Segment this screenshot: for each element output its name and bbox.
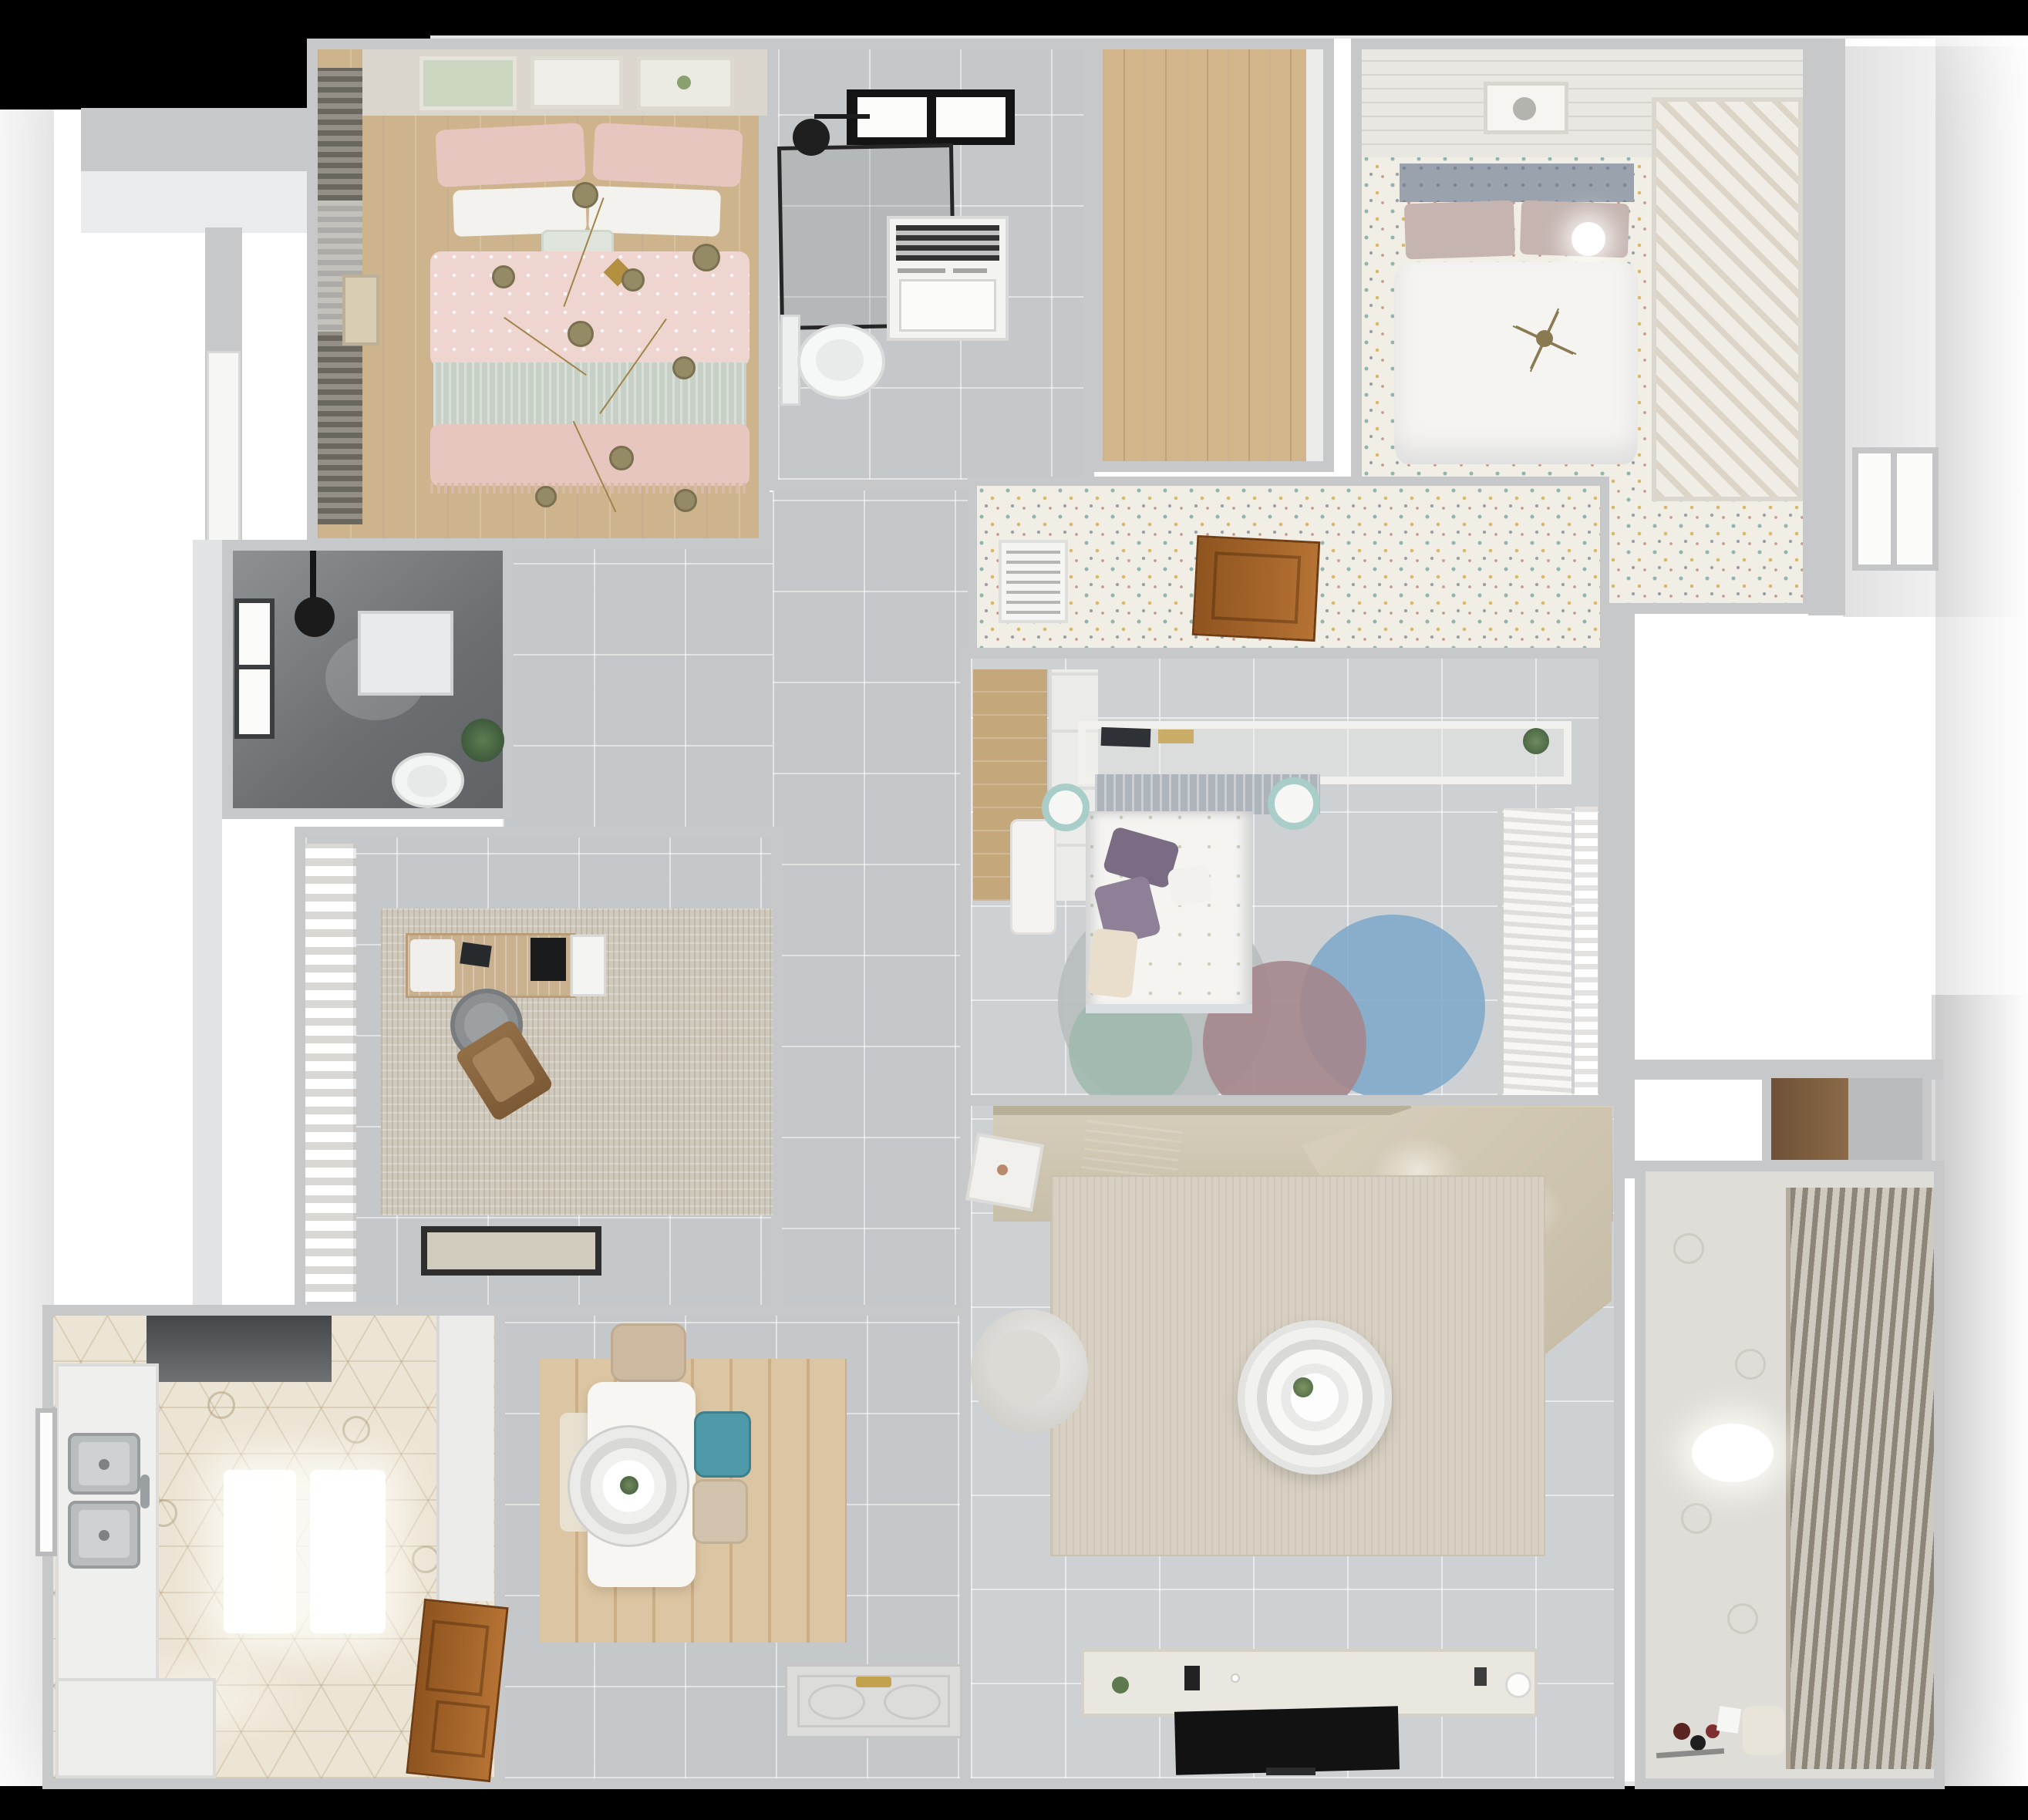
hallway-floor — [773, 478, 970, 1320]
keyboard — [460, 942, 492, 967]
armchair-seat — [988, 1330, 1060, 1404]
right-wall-window-bar — [1891, 453, 1897, 565]
chandelier-hub — [1536, 330, 1553, 347]
chair-teal — [694, 1411, 751, 1478]
sheer-curtain — [1575, 807, 1598, 1095]
black-bottom-bar — [0, 1786, 2028, 1820]
tv-stand — [1266, 1768, 1316, 1775]
shower-stem — [310, 551, 316, 598]
paper — [1716, 1706, 1741, 1734]
shower-head — [295, 597, 335, 637]
toy-stick — [1656, 1748, 1724, 1758]
ceiling-light-1 — [224, 1470, 296, 1633]
window-bar — [234, 665, 275, 669]
hex-motif-2 — [342, 1416, 370, 1444]
bed-fringe — [430, 483, 750, 494]
entry-door-gold-handles — [856, 1677, 891, 1687]
exterior-shade-right-bottom — [1932, 995, 2028, 1786]
art-frame-leaf — [419, 56, 517, 110]
pillow-cream — [1087, 928, 1139, 999]
hanging-clothes — [1504, 808, 1572, 1095]
chair-beige-right — [692, 1479, 748, 1544]
toy-2 — [1690, 1735, 1706, 1751]
shower-tray — [358, 611, 453, 696]
bed-pillow-pink-left — [435, 123, 586, 187]
sofa-back-line — [993, 1106, 1440, 1115]
plant — [461, 719, 504, 762]
room-dining — [492, 1305, 971, 1789]
sink-top-drain — [99, 1459, 109, 1470]
chandelier-bulb-7 — [609, 446, 634, 470]
room-bathroom — [767, 39, 1094, 490]
pendant-plant — [620, 1476, 638, 1495]
floor-plan-canvas — [0, 0, 2028, 1820]
stool — [1743, 1706, 1784, 1755]
wardrobe-wall-face — [1306, 49, 1323, 461]
kitchen-door-panel-1 — [425, 1619, 489, 1696]
floor-motif-1 — [1673, 1233, 1704, 1264]
chair-beige-top — [611, 1323, 686, 1382]
wall-art-left — [342, 275, 379, 345]
washer-door — [899, 279, 996, 332]
bedside-lamp-glow — [1572, 222, 1605, 256]
art-frame-botanical-motif — [677, 76, 691, 89]
outer-wall-right-top — [1808, 39, 1845, 615]
art-frame-motif — [1513, 97, 1536, 120]
desk-pad — [410, 939, 455, 992]
entry-door-arc-left — [808, 1684, 865, 1720]
hex-motif-4 — [412, 1545, 440, 1573]
toilet-seat — [816, 339, 864, 381]
sink-bottom-drain — [99, 1530, 109, 1541]
toy-1 — [1673, 1723, 1690, 1740]
console-plant — [1112, 1677, 1129, 1694]
console-vase — [1474, 1667, 1487, 1686]
chandelier-bulb-1 — [572, 182, 598, 208]
slatted-blinds — [1786, 1188, 1934, 1769]
clothes-rail — [1497, 808, 1502, 1095]
nightstand-right-top — [1275, 784, 1313, 823]
console-bowl — [1231, 1673, 1240, 1683]
chandelier-bulb-2 — [692, 244, 720, 271]
room-bedroom-3 — [960, 648, 1609, 1106]
washer-button-row — [898, 268, 945, 273]
bed-pillow-pink-right — [592, 123, 743, 187]
shelving-unit — [1652, 97, 1803, 501]
faucet — [140, 1475, 150, 1508]
room-kitchen — [42, 1305, 505, 1789]
floor-motif-4 — [1727, 1603, 1758, 1634]
chandelier-bulb-6 — [672, 356, 696, 379]
shower-head — [793, 119, 830, 156]
floor-motif-3 — [1681, 1503, 1712, 1534]
white-duvet — [1394, 262, 1638, 464]
shelf-books — [1101, 727, 1151, 747]
bedside-chair — [1167, 864, 1213, 906]
room-master-bedroom-box — [307, 39, 770, 549]
hex-motif-1 — [207, 1391, 235, 1419]
left-wall-door — [207, 351, 241, 551]
ac-vent-louvers — [1006, 549, 1060, 614]
coffee-table-plant — [1293, 1377, 1313, 1397]
chandelier-bulb-9 — [674, 489, 697, 512]
washer-drum — [896, 225, 999, 261]
shower-arm — [814, 114, 870, 119]
whiteboard — [571, 935, 606, 996]
chandelier-bulb-5 — [568, 321, 594, 347]
shelf-book-2 — [1158, 730, 1194, 743]
door-mat — [421, 1226, 601, 1276]
media-console — [1081, 1649, 1538, 1717]
desk-white — [1010, 819, 1056, 935]
room-shower — [222, 540, 514, 819]
chandelier-bulb-4 — [622, 268, 645, 292]
side-table-flower — [997, 1164, 1008, 1175]
chandelier-bulb-8 — [535, 486, 557, 507]
room-corridor — [968, 477, 1609, 659]
room-balcony — [1635, 1161, 1945, 1789]
counter-bottom — [56, 1678, 216, 1778]
niche-wood-shelf — [1771, 1078, 1848, 1160]
curtains — [305, 844, 356, 1302]
tv — [1174, 1706, 1400, 1775]
bed-foot-fringe — [1086, 1004, 1252, 1013]
console-lamp — [1505, 1672, 1531, 1698]
room-living — [960, 1095, 1625, 1789]
console-speaker — [1184, 1666, 1200, 1690]
coffee-table — [1238, 1320, 1392, 1475]
door-leaf-panel — [1211, 551, 1301, 624]
skylight-pane-right — [936, 97, 1006, 137]
entry-door-arc-right — [884, 1684, 941, 1720]
ceiling-lamp — [1692, 1424, 1774, 1482]
washer-button-row-2 — [953, 268, 987, 273]
toilet-seat — [407, 765, 447, 797]
bed-sage-band — [433, 362, 746, 429]
nightstand-left-top — [1049, 790, 1083, 824]
monitor — [531, 938, 566, 981]
room-storage-niche — [1762, 1069, 1932, 1169]
shelf-plant — [1523, 728, 1549, 754]
kitchen-door-panel-2 — [431, 1700, 490, 1758]
tall-cabinet — [436, 1316, 494, 1601]
ceiling-light-2 — [310, 1470, 386, 1633]
tufted-headboard — [1400, 163, 1634, 202]
floor-motif-2 — [1735, 1349, 1766, 1380]
chandelier-bulb-3 — [492, 265, 515, 288]
room-study — [295, 827, 782, 1320]
range-hood — [147, 1316, 332, 1382]
outer-wall-left-lower — [193, 540, 222, 1320]
headboard-pillow-left — [1404, 201, 1515, 260]
kitchen-window — [35, 1408, 57, 1556]
art-frame-plain — [531, 56, 623, 109]
room-wardrobe-hall — [1092, 39, 1334, 472]
